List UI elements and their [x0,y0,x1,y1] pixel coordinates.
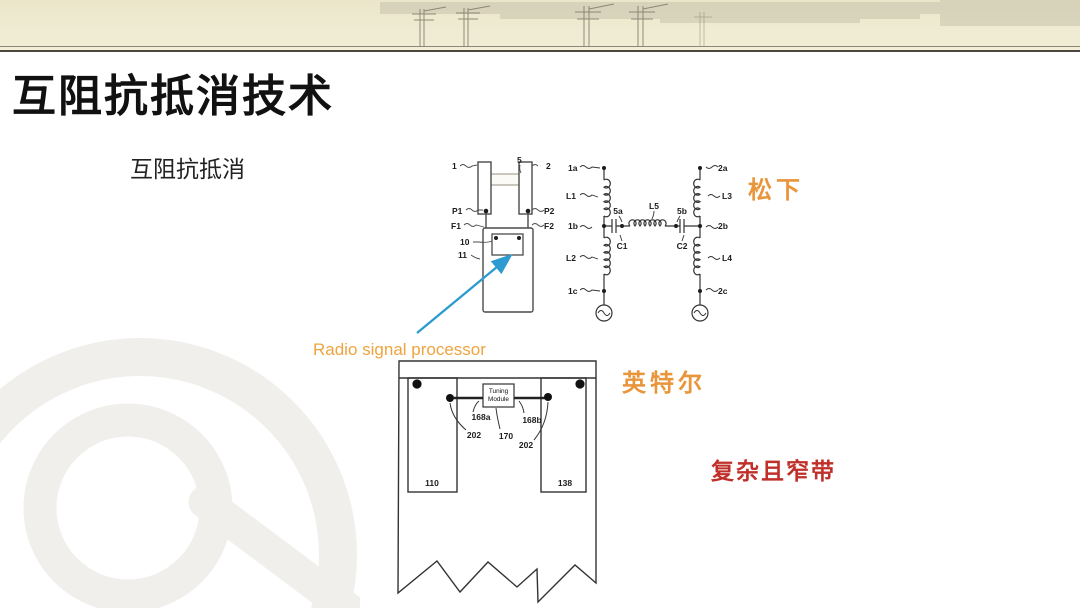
header-band [0,0,1080,52]
inductor-L3 [694,179,700,217]
svg-text:L2: L2 [566,253,576,263]
svg-text:F1: F1 [451,221,461,231]
inductor-L1 [604,179,610,217]
tuning-module-text: Tuning Module [488,388,509,403]
svg-text:C1: C1 [617,241,628,251]
svg-text:L4: L4 [722,253,732,263]
svg-text:L1: L1 [566,191,576,201]
svg-text:P2: P2 [544,206,555,216]
inductor-L4 [694,237,700,275]
svg-text:170: 170 [499,431,513,441]
svg-text:Module: Module [488,396,509,403]
svg-text:138: 138 [558,478,572,488]
subtitle-label: 互阻抗抵消 [130,150,245,184]
svg-text:1: 1 [452,161,457,171]
svg-text:C2: C2 [677,241,688,251]
header-sketch [0,0,1080,48]
sine-symbols [598,311,706,316]
vendor-label-intel: 英特尔 [622,363,706,398]
inductor-L5 [629,220,666,226]
vendor-label-panasonic: 松下 [748,170,804,205]
capacitor-C1 [612,219,616,233]
svg-text:P1: P1 [452,206,463,216]
leader-lines [580,166,720,292]
background-logo-watermark [0,330,360,608]
inductor-L2 [604,237,610,275]
svg-text:F2: F2 [544,221,554,231]
verdict-label: 复杂且窄带 [711,452,836,486]
antenna-element-2 [519,162,532,214]
page-title: 互阻抗抵消技术 [12,60,334,124]
feed-lines [486,213,528,228]
svg-text:1a: 1a [568,163,578,173]
panasonic-circuit-figure: 1a L1 1b L2 1c 2a L3 2b L4 2c 5a L5 5b C… [560,148,755,334]
svg-text:202: 202 [519,440,533,450]
annotation-arrow [405,245,525,343]
svg-text:1b: 1b [568,221,578,231]
svg-text:168a: 168a [472,412,491,422]
circuit-nodes [602,166,702,293]
capacitor-C2 [680,219,684,233]
svg-text:L3: L3 [722,191,732,201]
svg-text:1c: 1c [568,286,578,296]
svg-text:2a: 2a [718,163,728,173]
svg-text:5: 5 [517,155,522,165]
svg-text:2: 2 [546,161,551,171]
circuit-labels: 1a L1 1b L2 1c 2a L3 2b L4 2c 5a L5 5b C… [566,163,732,296]
svg-text:2b: 2b [718,221,728,231]
antenna-element-1 [478,162,491,214]
svg-text:110: 110 [425,478,439,488]
svg-text:Tuning: Tuning [489,388,509,395]
svg-text:2c: 2c [718,286,728,296]
intel-antenna-figure: Tuning Module 168a 168b 170 202 202 110 … [395,356,607,608]
svg-text:168b: 168b [522,415,541,425]
svg-text:202: 202 [467,430,481,440]
svg-text:5a: 5a [613,206,623,216]
svg-text:5b: 5b [677,206,687,216]
svg-text:L5: L5 [649,201,659,211]
